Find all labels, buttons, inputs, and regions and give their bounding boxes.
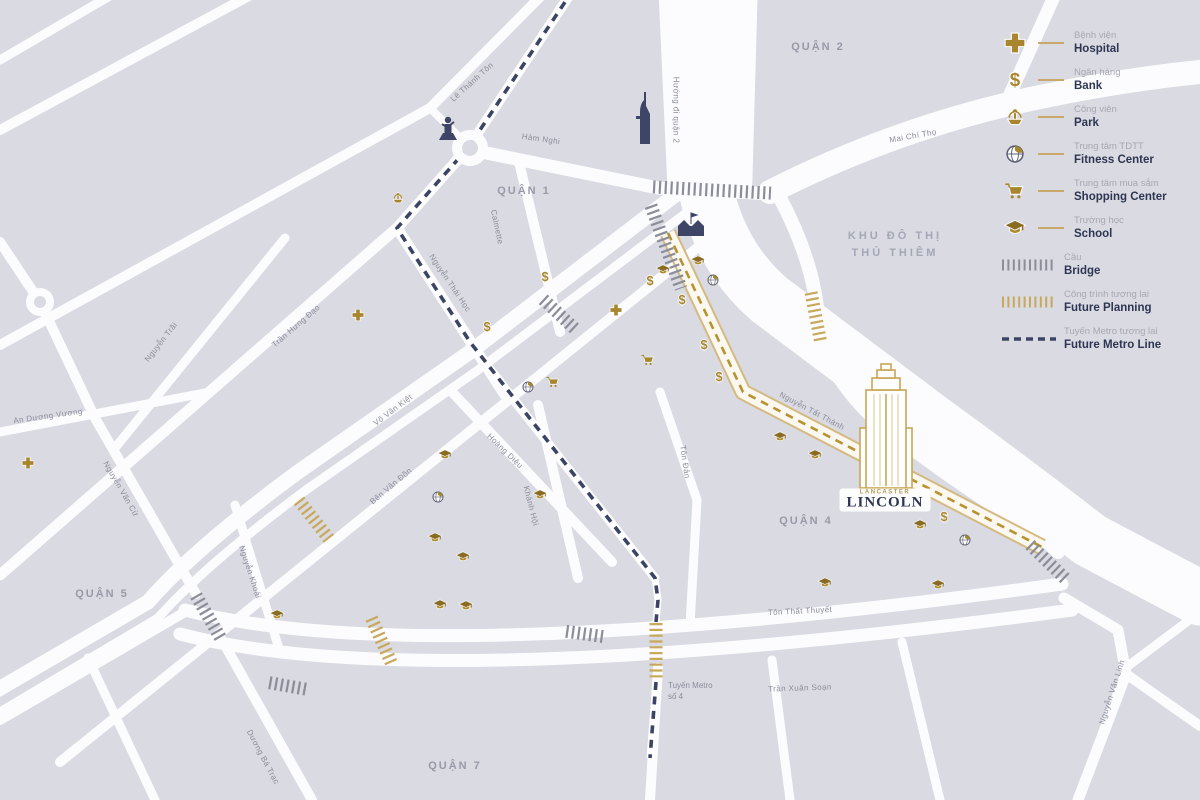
future-planning-hatch bbox=[299, 501, 331, 542]
legend-label-vn: Công trình tương lai bbox=[1064, 289, 1152, 301]
legend-item-metro: Tuyến Metro tương laiFuture Metro Line bbox=[1000, 326, 1200, 352]
legend-label-en: Shopping Center bbox=[1074, 190, 1167, 204]
legend-item-hospital: Bệnh việnHospital bbox=[1000, 30, 1200, 56]
school-icon bbox=[1004, 217, 1026, 239]
park-icon bbox=[1004, 106, 1026, 128]
legend-label-en: Bank bbox=[1074, 79, 1120, 93]
lancaster-lincoln-label: LANCASTER LINCOLN bbox=[839, 489, 930, 512]
legend-item-fitness: Trung tâm TDTTFitness Center bbox=[1000, 141, 1200, 167]
bridge-line-icon bbox=[1000, 257, 1058, 273]
fitness-icon bbox=[1004, 143, 1026, 165]
legend-label-vn: Cầu bbox=[1064, 252, 1100, 264]
legend-label-vn: Trường học bbox=[1074, 215, 1124, 227]
legend-label-en: Fitness Center bbox=[1074, 153, 1154, 167]
area-label-line1: Khu đô thị bbox=[848, 228, 942, 245]
legend-item-school: Trường họcSchool bbox=[1000, 215, 1200, 241]
bank-icon bbox=[1004, 69, 1026, 91]
legend-connector bbox=[1038, 116, 1064, 118]
legend-label-vn: Bệnh viện bbox=[1074, 30, 1119, 42]
legend-label-vn: Tuyến Metro tương lai bbox=[1064, 326, 1161, 338]
legend-connector bbox=[1038, 153, 1064, 155]
legend-label-vn: Công viên bbox=[1074, 104, 1117, 116]
bitexco-tower-icon bbox=[636, 92, 650, 144]
metro-line-icon bbox=[1000, 331, 1058, 347]
legend-connector bbox=[1038, 227, 1064, 229]
metro-4-label: Tuyến Metro số 4 bbox=[668, 680, 713, 702]
thu-thiem-area-label: Khu đô thị Thủ Thiêm bbox=[848, 228, 942, 262]
legend-label-en: Hospital bbox=[1074, 42, 1119, 56]
legend-label-en: Bridge bbox=[1064, 264, 1100, 278]
future-line-icon bbox=[1000, 294, 1058, 310]
legend-item-future: Công trình tương laiFuture Planning bbox=[1000, 289, 1200, 315]
legend-label-vn: Trung tâm mua sắm bbox=[1074, 178, 1167, 190]
map-legend: Bệnh việnHospitalNgân hàngBankCông viênP… bbox=[1000, 30, 1200, 363]
legend-connector bbox=[1038, 42, 1064, 44]
landmark-name: LINCOLN bbox=[846, 496, 923, 511]
metro-label-line2: số 4 bbox=[668, 691, 713, 702]
legend-item-shopping: Trung tâm mua sắmShopping Center bbox=[1000, 178, 1200, 204]
legend-connector bbox=[1038, 79, 1064, 81]
area-label-line2: Thủ Thiêm bbox=[848, 245, 942, 262]
legend-connector bbox=[1038, 190, 1064, 192]
bridge-hatch bbox=[653, 187, 771, 193]
legend-label-en: School bbox=[1074, 227, 1124, 241]
bridge-hatch bbox=[269, 683, 306, 690]
hospital-icon bbox=[1004, 32, 1026, 54]
legend-item-park: Công viênPark bbox=[1000, 104, 1200, 130]
legend-item-bank: Ngân hàngBank bbox=[1000, 67, 1200, 93]
legend-label-vn: Ngân hàng bbox=[1074, 67, 1120, 79]
location-map: $ bbox=[0, 0, 1200, 800]
legend-label-vn: Trung tâm TDTT bbox=[1074, 141, 1154, 153]
legend-label-en: Park bbox=[1074, 116, 1117, 130]
legend-label-en: Future Planning bbox=[1064, 301, 1152, 315]
metro-label-line1: Tuyến Metro bbox=[668, 680, 713, 691]
shopping-icon bbox=[1004, 180, 1026, 202]
legend-item-bridge: CầuBridge bbox=[1000, 252, 1200, 278]
legend-label-en: Future Metro Line bbox=[1064, 338, 1161, 352]
